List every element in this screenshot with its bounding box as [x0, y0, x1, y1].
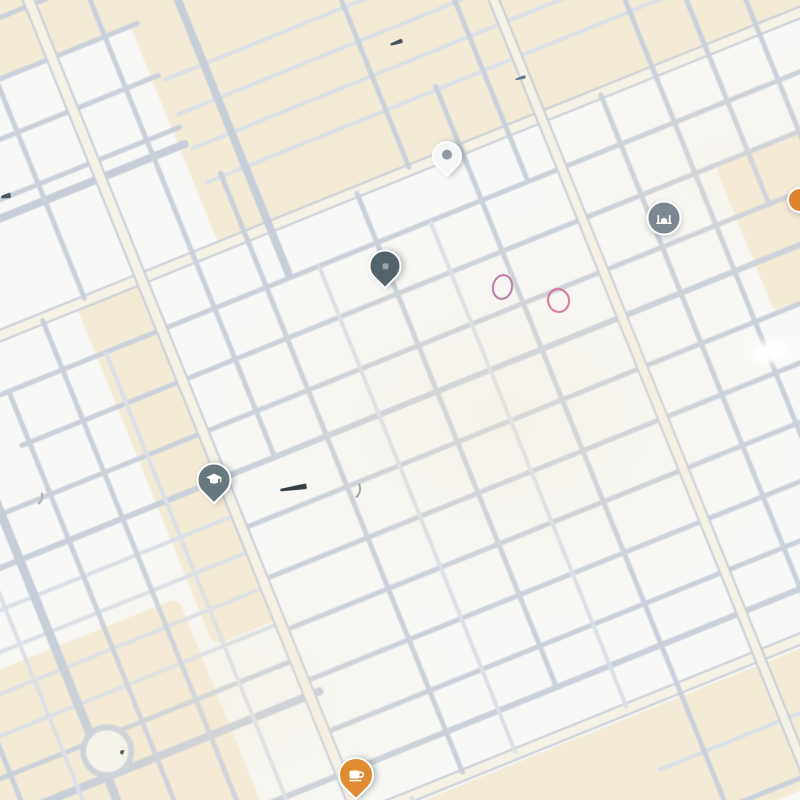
- coffee-cup-icon: [340, 759, 372, 791]
- orange-poi-clipped-body: [787, 187, 800, 213]
- mosque-icon: [655, 209, 674, 228]
- blur-icon: [371, 252, 400, 281]
- cafe-poi-pin-body: [331, 750, 382, 800]
- dot-gray-icon: [434, 143, 460, 169]
- mosque-poi-body: [647, 201, 682, 236]
- graduation-cap-icon: [199, 465, 230, 496]
- map-markers-layer: [0, 0, 800, 800]
- generic-poi-pin-body: [426, 135, 468, 177]
- dark-poi-pin-body: [362, 243, 409, 290]
- school-poi-pin-body: [189, 455, 238, 504]
- map-canvas[interactable]: [0, 0, 800, 800]
